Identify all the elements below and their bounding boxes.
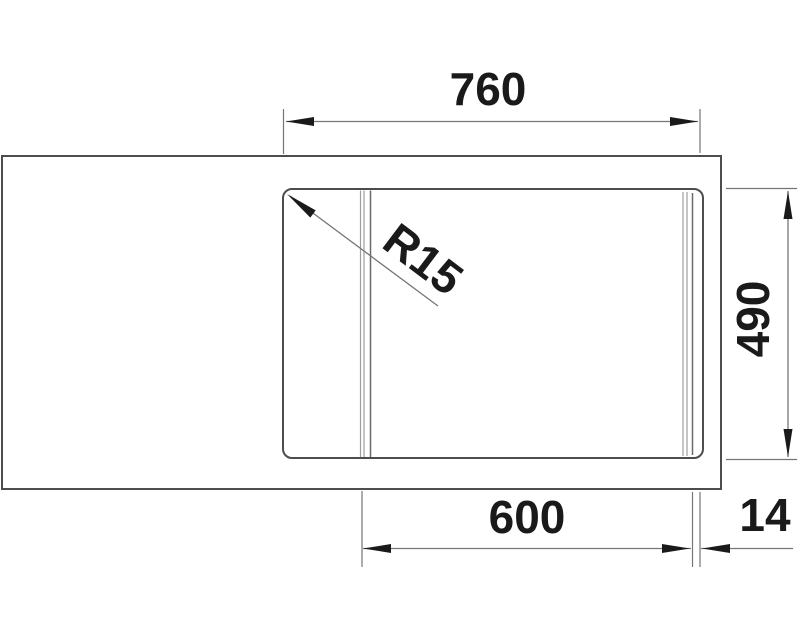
dimension-bowl-width: 600 [362,491,693,567]
arrowhead-left [363,544,391,553]
bowl-outline [283,189,703,458]
sink-technical-drawing: 760 490 600 14 [0,0,800,640]
radius-callout: R15 [287,194,473,306]
arrowhead-left [286,117,314,126]
dimension-top-width: 760 [284,63,701,154]
arrowhead-left-inward [702,544,730,553]
dim-label-bowl-depth: 490 [727,281,779,358]
drawing-canvas: 760 490 600 14 [0,0,800,640]
dimension-edge-offset: 14 [700,489,793,567]
sink-outline [2,156,721,489]
dim-label-edge-offset: 14 [739,489,791,541]
arrowhead-right [662,544,690,553]
dim-label-top-width: 760 [450,63,527,115]
arrowhead-up [784,191,793,219]
arrowhead-right [670,117,698,126]
dim-label-bowl-width: 600 [489,491,566,543]
arrowhead-corner [287,194,316,218]
radius-label: R15 [374,213,473,305]
arrowhead-down [784,429,793,457]
dimension-bowl-depth: 490 [726,189,797,460]
